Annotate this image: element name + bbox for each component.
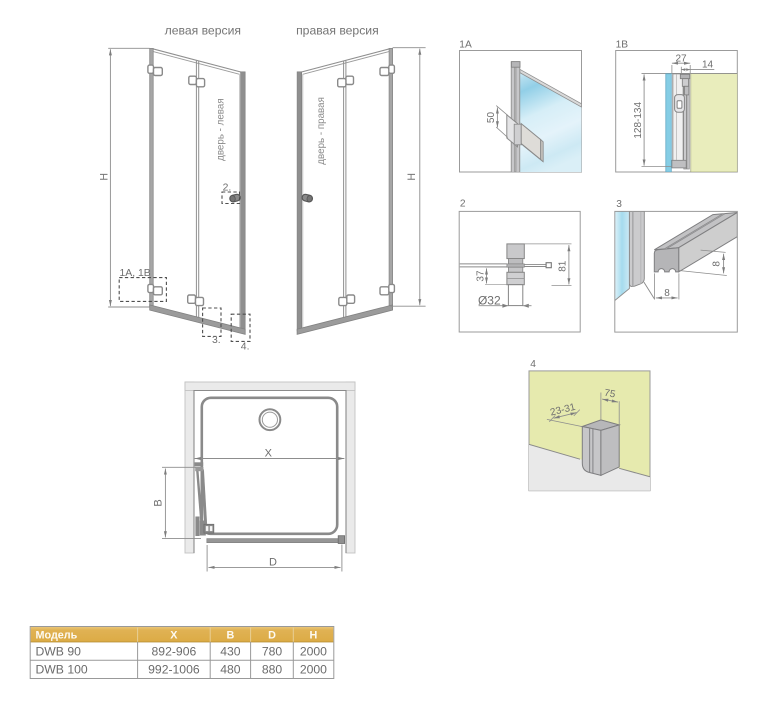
svg-text:X: X	[170, 629, 178, 641]
svg-text:14: 14	[702, 60, 714, 71]
svg-text:3: 3	[616, 199, 622, 210]
svg-text:50: 50	[486, 112, 497, 124]
svg-text:8: 8	[712, 261, 723, 267]
svg-text:левая версия: левая версия	[165, 24, 241, 38]
svg-text:B: B	[153, 499, 165, 506]
svg-text:2000: 2000	[300, 644, 327, 658]
svg-text:правая версия: правая версия	[296, 24, 379, 38]
svg-text:2.: 2.	[223, 182, 232, 193]
svg-text:H: H	[98, 173, 110, 181]
svg-text:892-906: 892-906	[152, 644, 197, 658]
svg-text:дверь - правая: дверь - правая	[316, 97, 327, 165]
svg-text:D: D	[269, 557, 277, 569]
svg-text:H: H	[406, 173, 418, 181]
svg-text:4.: 4.	[241, 342, 250, 353]
svg-text:880: 880	[262, 663, 283, 677]
svg-text:480: 480	[220, 663, 241, 677]
svg-text:3.: 3.	[212, 335, 221, 346]
svg-text:81: 81	[558, 260, 569, 272]
svg-text:X: X	[265, 447, 273, 459]
svg-text:дверь - левая: дверь - левая	[215, 98, 226, 161]
svg-text:H: H	[309, 629, 317, 641]
svg-text:Модель: Модель	[36, 629, 78, 641]
svg-text:430: 430	[220, 644, 241, 658]
svg-text:27: 27	[675, 53, 687, 64]
svg-text:2000: 2000	[300, 663, 327, 677]
svg-text:1A: 1A	[459, 39, 472, 50]
svg-text:DWB 90: DWB 90	[36, 644, 82, 658]
svg-text:DWB 100: DWB 100	[36, 663, 88, 677]
svg-text:2: 2	[460, 199, 466, 210]
svg-text:4: 4	[530, 359, 536, 370]
svg-text:1B: 1B	[616, 39, 629, 50]
svg-text:B: B	[226, 629, 234, 641]
svg-text:1A, 1B: 1A, 1B	[120, 268, 151, 279]
svg-text:Ø32: Ø32	[478, 294, 501, 308]
svg-text:37: 37	[475, 270, 486, 282]
svg-text:992-1006: 992-1006	[148, 663, 200, 677]
svg-text:780: 780	[262, 644, 283, 658]
svg-text:8: 8	[664, 288, 670, 299]
svg-text:128-134: 128-134	[633, 102, 644, 139]
svg-text:D: D	[268, 629, 276, 641]
